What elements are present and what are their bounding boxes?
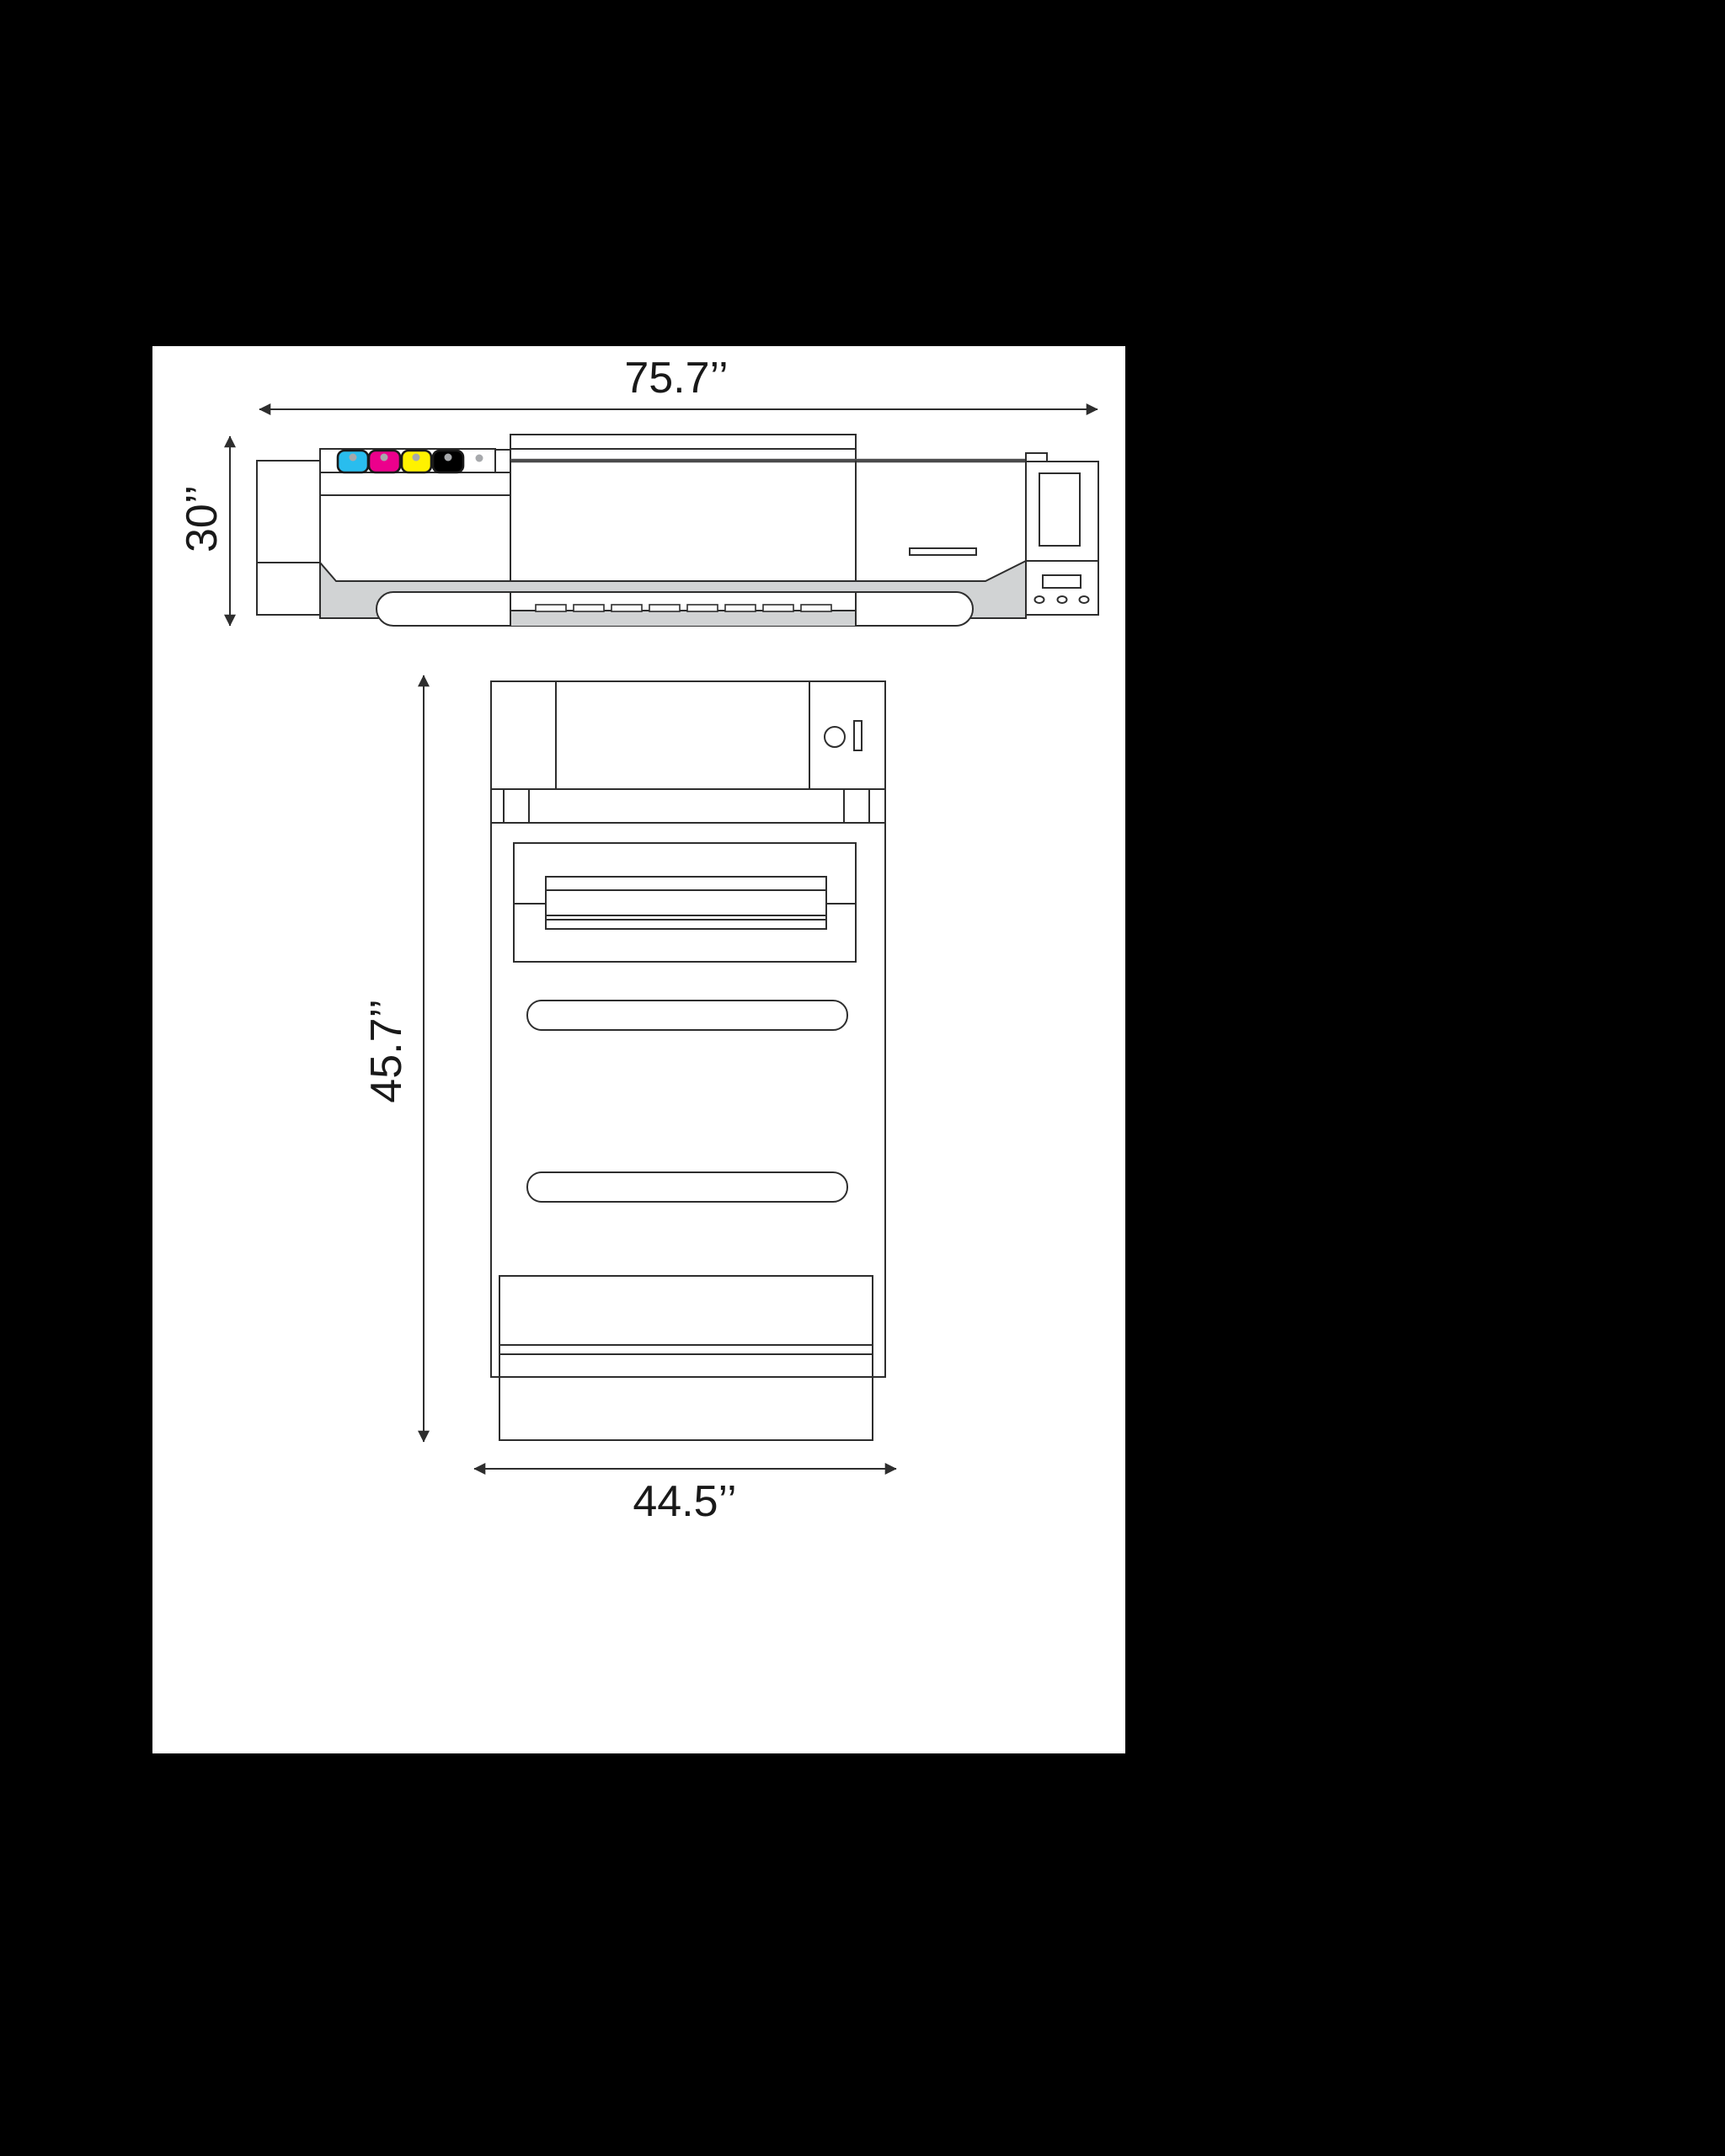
- left-end-cap: [257, 461, 320, 615]
- vent-slat: [649, 605, 680, 611]
- vent-slat: [536, 605, 566, 611]
- top-depth-label: 45.7’’: [362, 999, 411, 1102]
- control-panel: [1026, 453, 1098, 615]
- media-output-slot: [910, 548, 976, 555]
- cartridge-dot: [445, 454, 452, 462]
- vent-slat: [611, 605, 642, 611]
- vent-region-gray: [510, 611, 856, 626]
- front-height-label: 30’’: [178, 485, 227, 552]
- top-lid: [510, 435, 856, 461]
- empty-slot-dot: [476, 455, 483, 462]
- handle-slot-lower: [527, 1172, 847, 1202]
- control-panel-tab: [1026, 453, 1047, 462]
- cartridge-dot: [413, 454, 420, 462]
- front-width-label: 75.7’’: [624, 354, 728, 403]
- printer-spec-diagram: 75.7’’ 30’’: [0, 0, 1725, 2156]
- handle-slot-upper: [527, 1001, 847, 1030]
- vent-slat: [725, 605, 756, 611]
- cartridge-dot: [350, 454, 357, 462]
- control-panel-lcd: [1043, 575, 1081, 588]
- cartridge-dot: [381, 454, 388, 462]
- vent-slat: [687, 605, 718, 611]
- lid-outline: [510, 435, 856, 461]
- vent-slat: [801, 605, 831, 611]
- vent-slat: [763, 605, 793, 611]
- top-width-label: 44.5’’: [633, 1477, 736, 1526]
- control-panel-display: [1039, 473, 1080, 546]
- vent-slat: [574, 605, 604, 611]
- cartridge-bay-end-box: [495, 450, 510, 472]
